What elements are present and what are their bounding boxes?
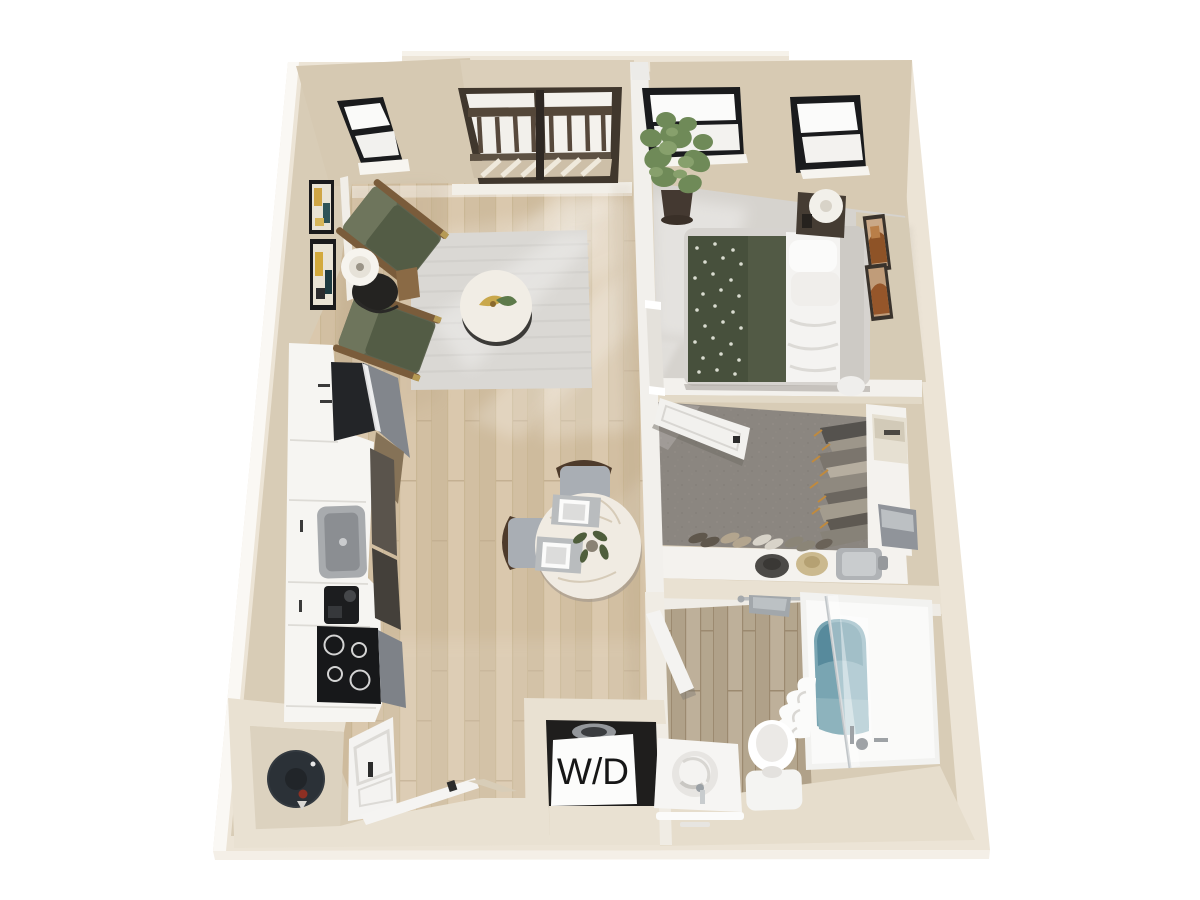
svg-text:W/D: W/D xyxy=(557,751,629,792)
